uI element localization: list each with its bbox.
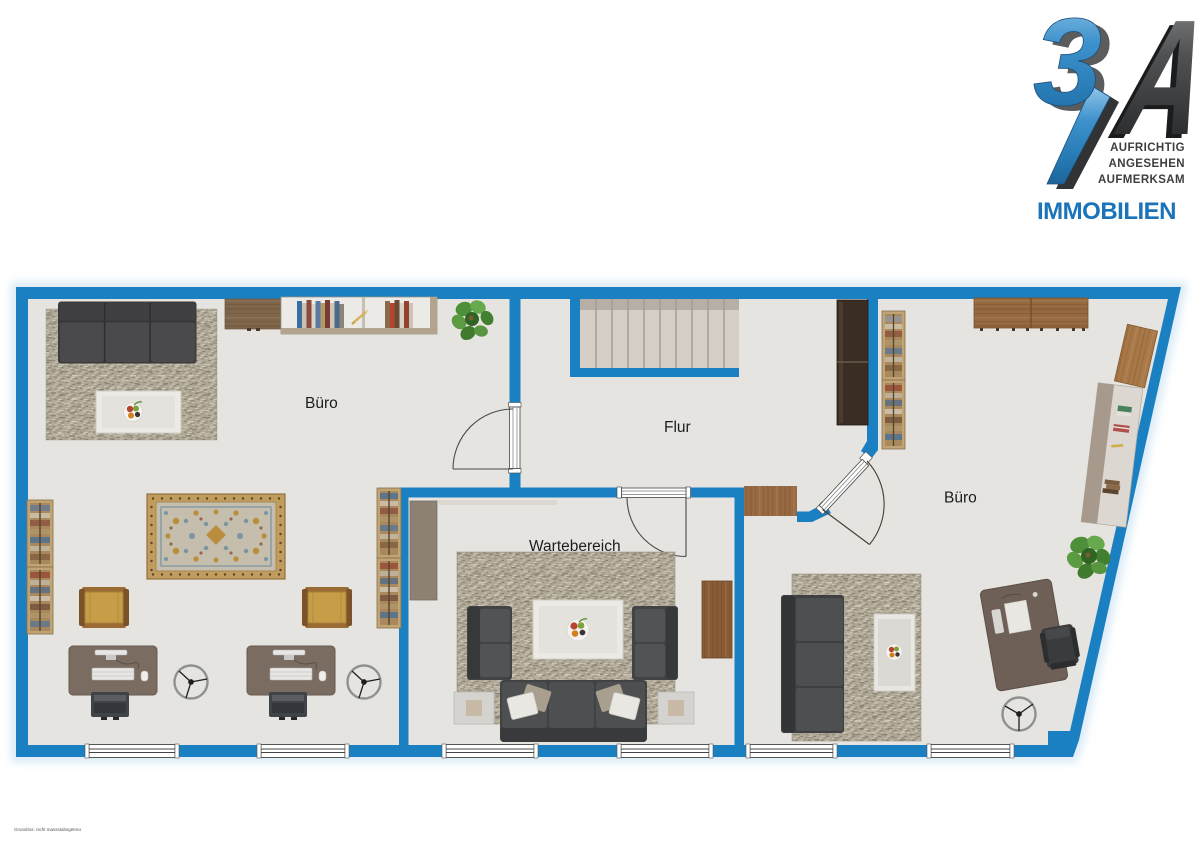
svg-text:AUFMERKSAM: AUFMERKSAM <box>1098 174 1185 186</box>
svg-text:IMMOBILIEN: IMMOBILIEN <box>1037 198 1176 225</box>
svg-text:Büro: Büro <box>305 395 338 412</box>
svg-text:3: 3 <box>1033 0 1102 132</box>
svg-text:Grundriss: nicht massstabsgetr: Grundriss: nicht massstabsgetreu <box>14 827 82 832</box>
svg-text:Büro: Büro <box>944 490 977 507</box>
svg-text:AUFRICHTIG: AUFRICHTIG <box>1110 142 1185 154</box>
svg-text:ANGESEHEN: ANGESEHEN <box>1109 158 1185 170</box>
svg-text:Wartebereich: Wartebereich <box>529 538 621 555</box>
svg-text:Flur: Flur <box>664 419 691 436</box>
